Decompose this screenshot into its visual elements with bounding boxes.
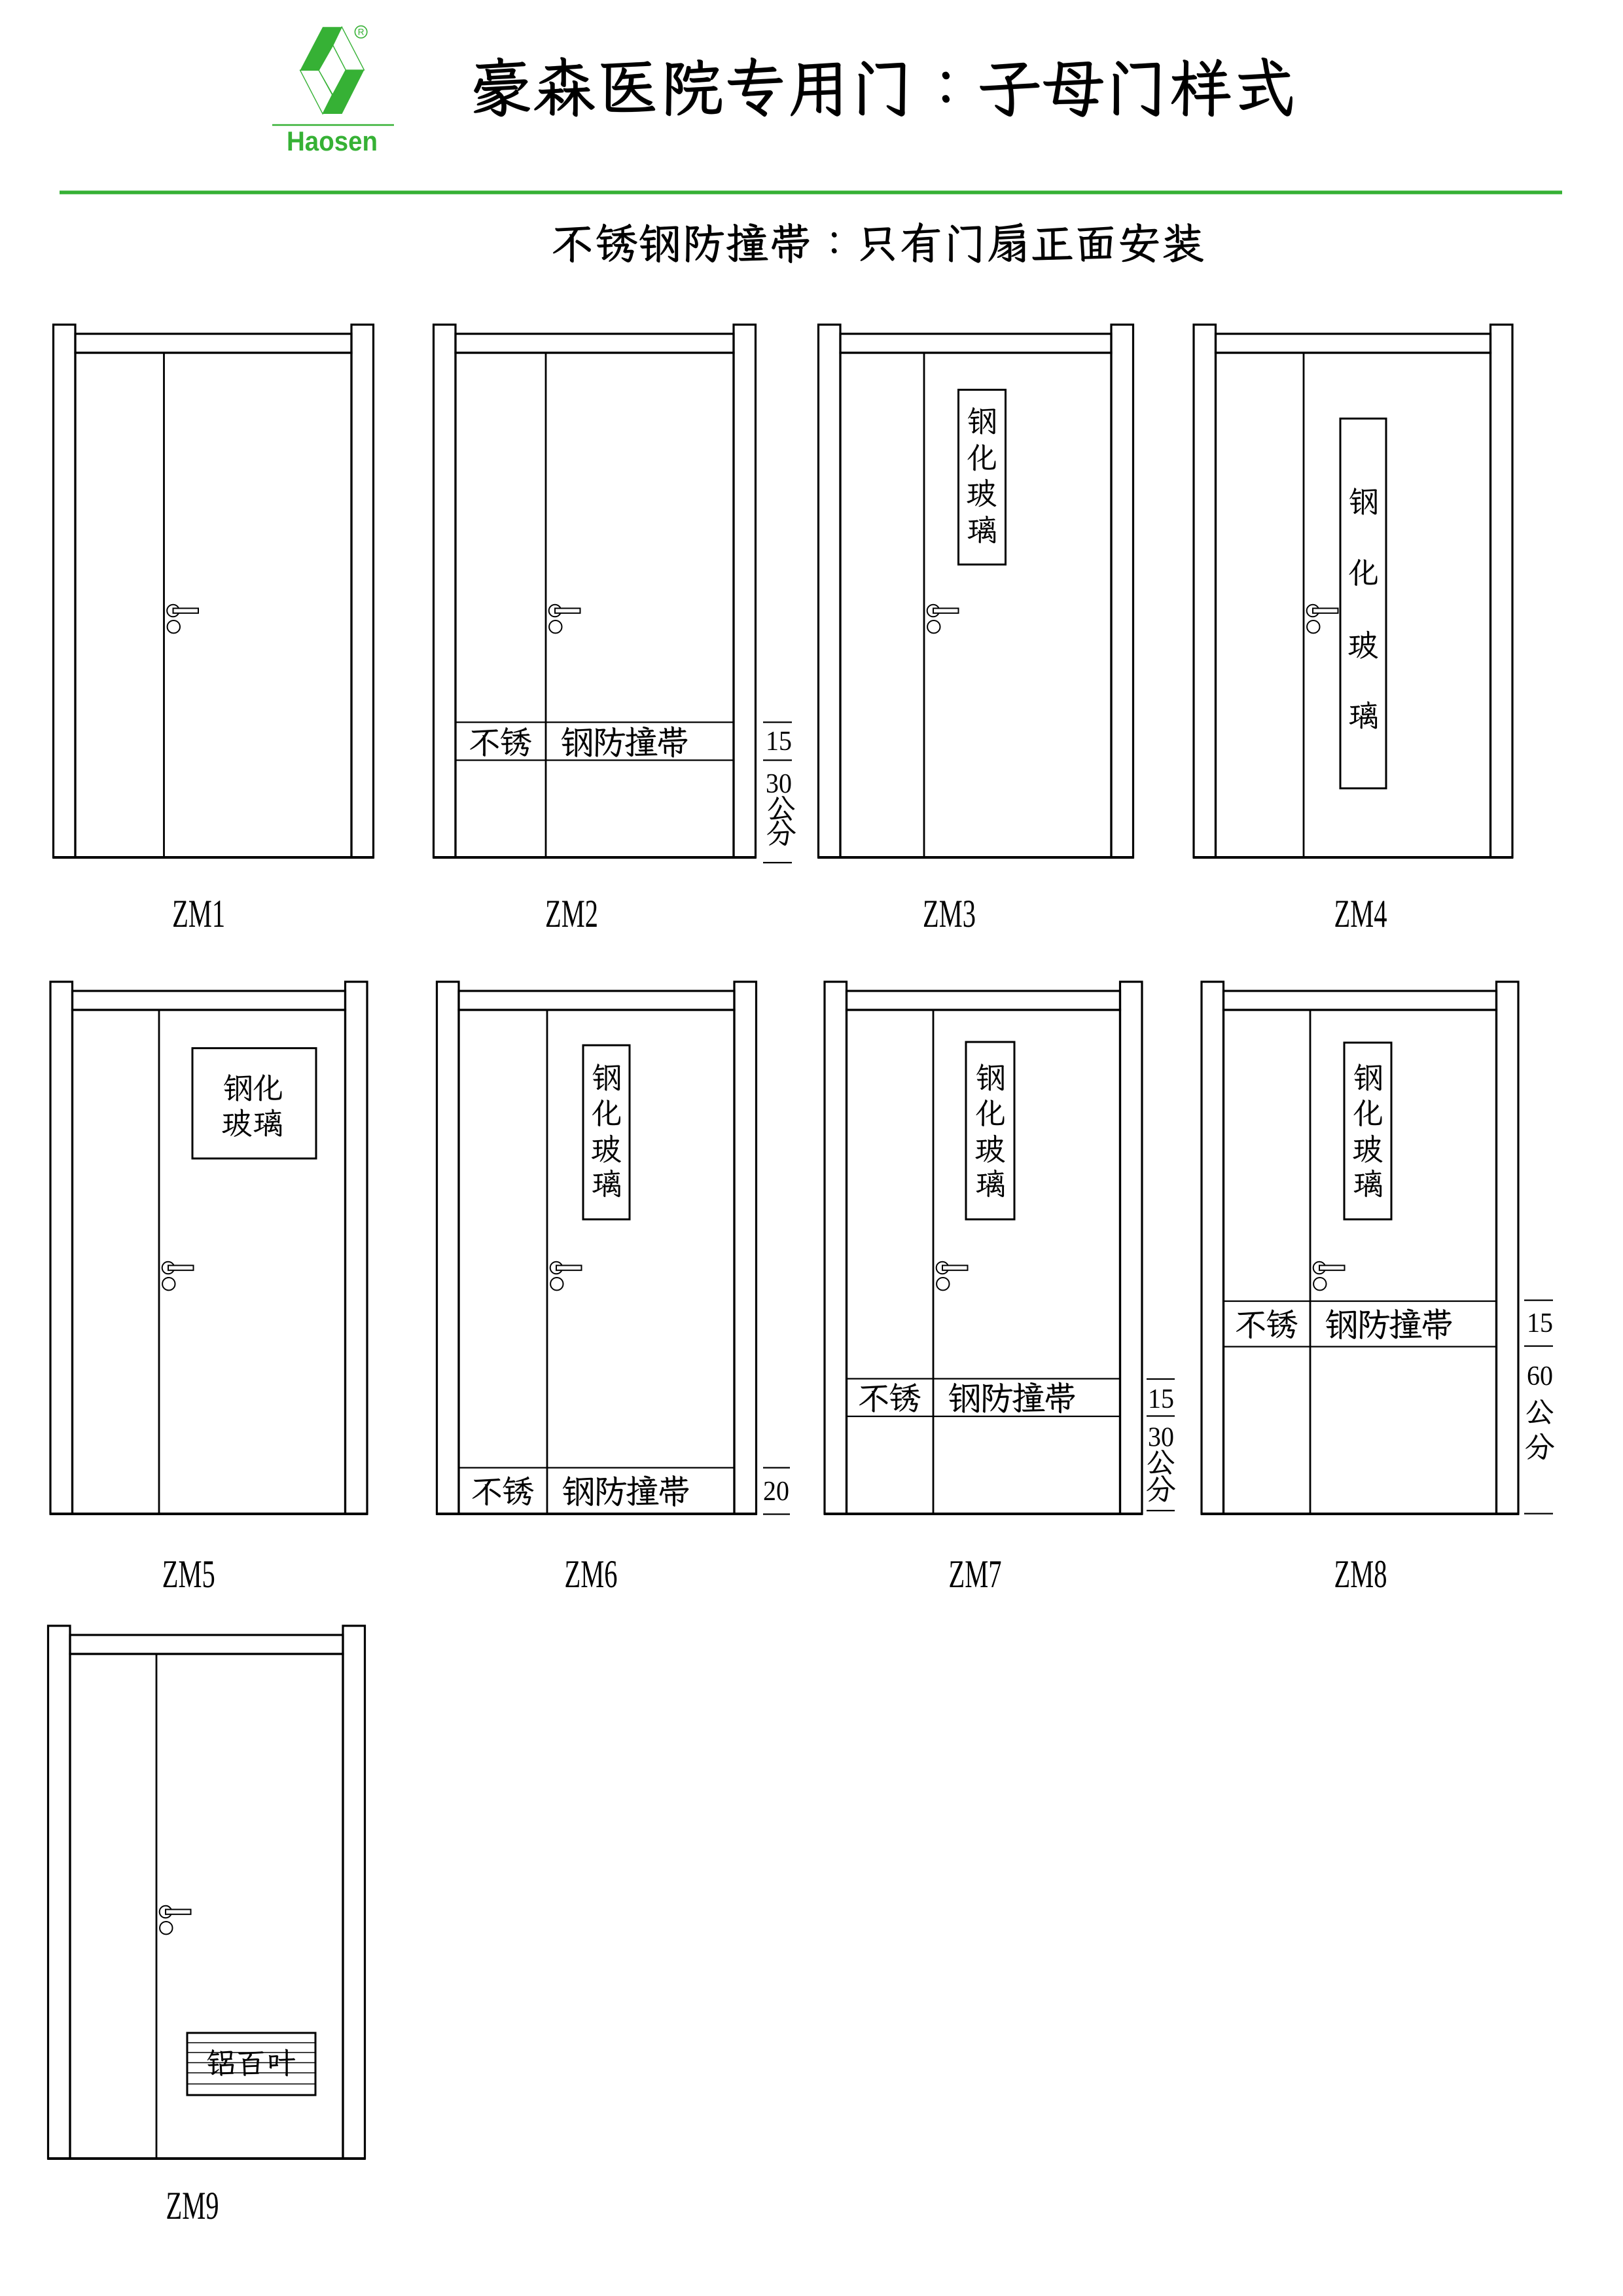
svg-text:30: 30	[766, 769, 792, 799]
svg-text:15: 15	[1148, 1384, 1174, 1414]
svg-text:ZM3: ZM3	[923, 892, 976, 935]
svg-text:ZM5: ZM5	[162, 1552, 215, 1596]
svg-text:ZM8: ZM8	[1334, 1552, 1387, 1596]
svg-text:ZM7: ZM7	[949, 1552, 1002, 1596]
svg-text:30: 30	[1148, 1423, 1174, 1453]
svg-text:ZM6: ZM6	[565, 1552, 618, 1596]
svg-text:ZM1: ZM1	[172, 892, 225, 935]
svg-text:ZM2: ZM2	[545, 892, 598, 935]
svg-text:Haosen: Haosen	[287, 126, 378, 156]
svg-text:60: 60	[1527, 1361, 1553, 1391]
svg-text:R: R	[358, 27, 365, 37]
svg-text:15: 15	[1527, 1308, 1553, 1338]
svg-text:15: 15	[766, 726, 792, 757]
svg-text:ZM9: ZM9	[166, 2184, 219, 2227]
svg-text:20: 20	[763, 1477, 789, 1507]
svg-text:ZM4: ZM4	[1334, 892, 1387, 935]
